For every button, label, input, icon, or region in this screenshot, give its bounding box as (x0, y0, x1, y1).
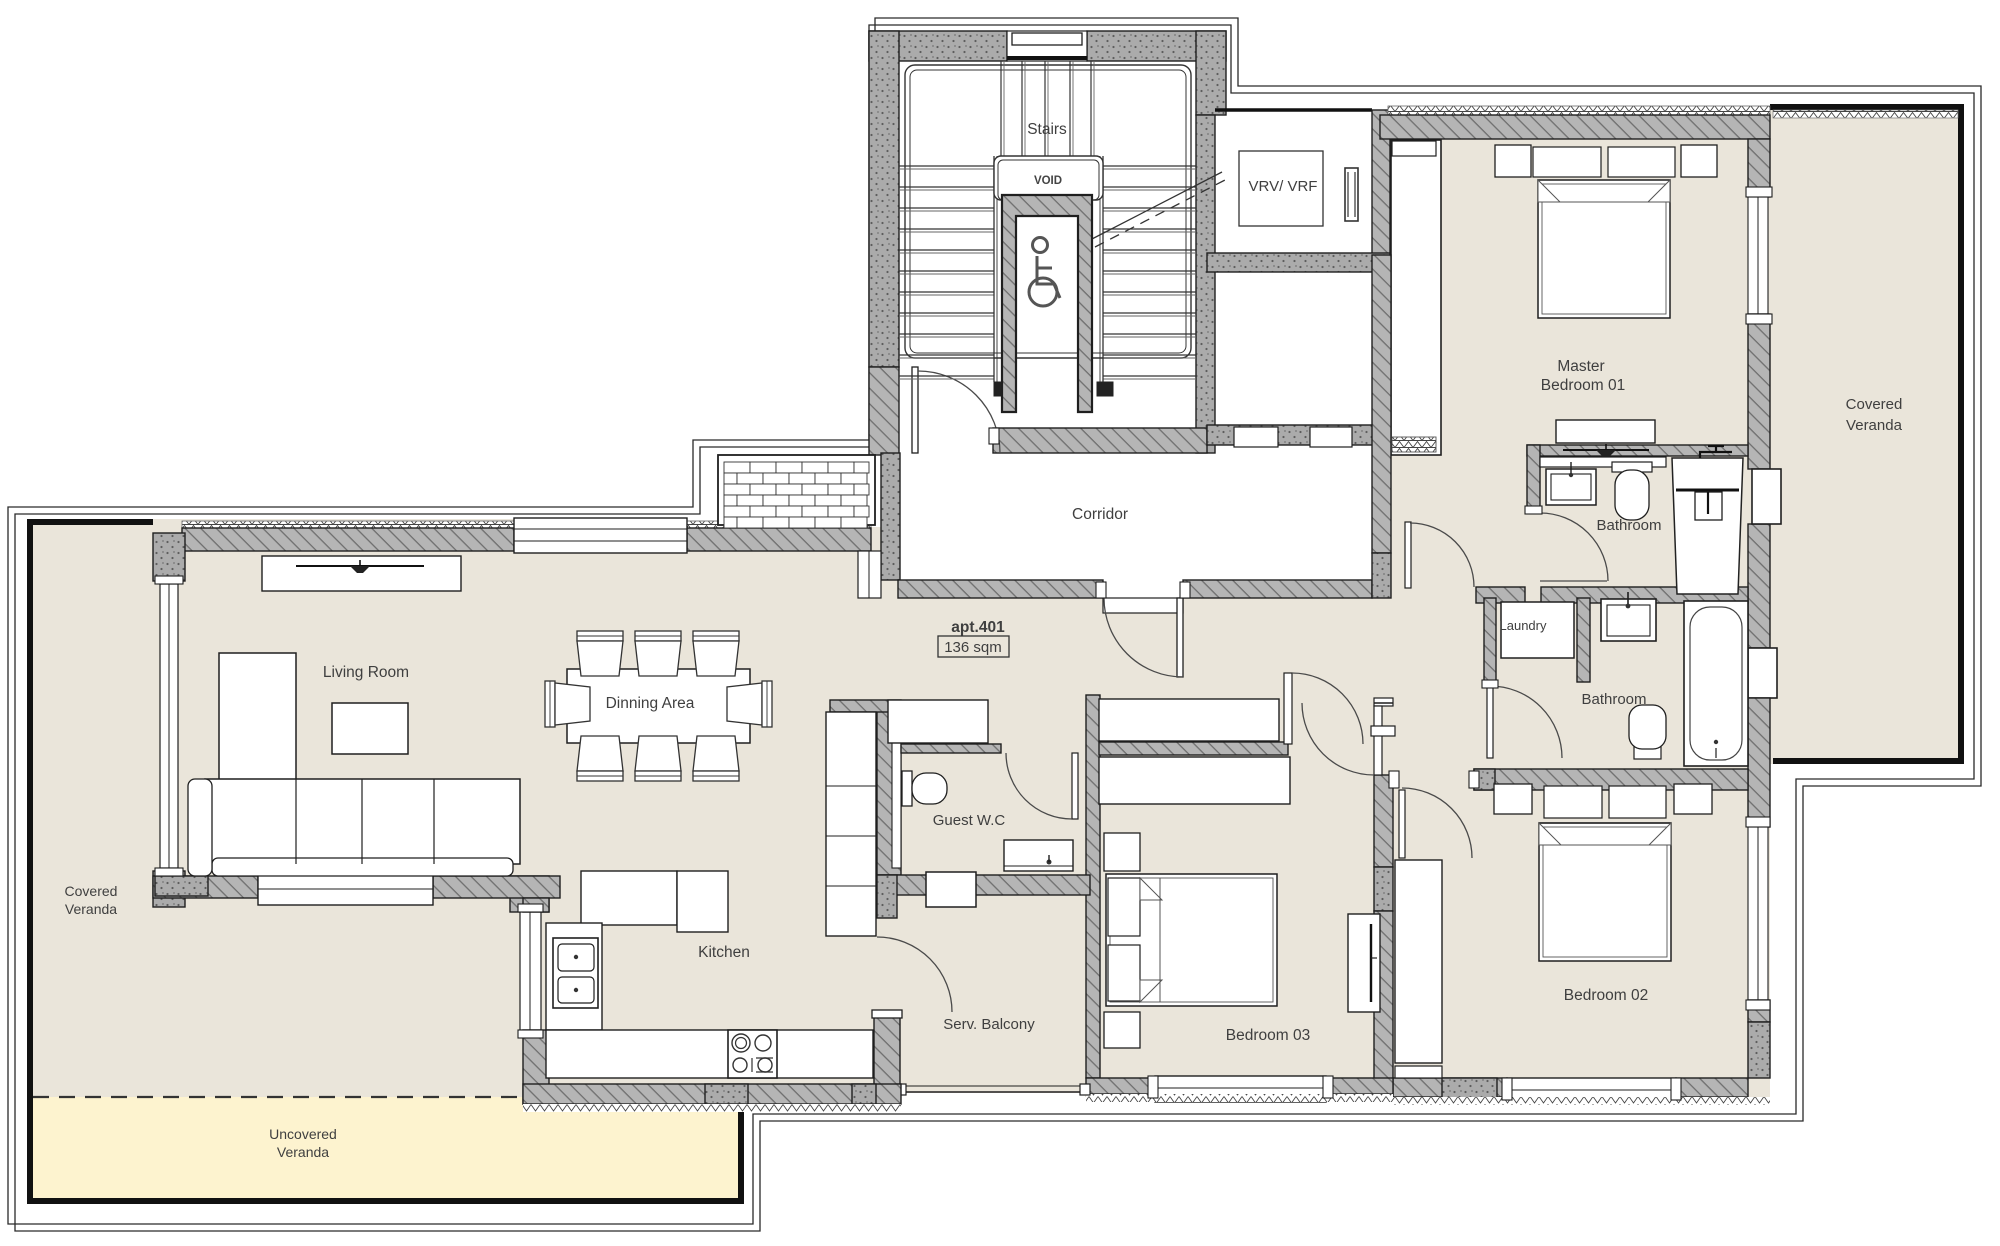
svg-text:Bathroom: Bathroom (1581, 691, 1646, 708)
svg-text:Master: Master (1557, 358, 1604, 375)
svg-text:Veranda: Veranda (277, 1144, 329, 1160)
svg-text:Serv. Balcony: Serv. Balcony (943, 1016, 1035, 1033)
svg-text:Bedroom 01: Bedroom 01 (1541, 377, 1625, 394)
svg-text:136 sqm: 136 sqm (944, 639, 1002, 656)
svg-text:Guest W.C: Guest W.C (933, 812, 1006, 829)
svg-text:Bathroom: Bathroom (1596, 517, 1661, 534)
svg-text:Stairs: Stairs (1027, 121, 1067, 138)
svg-text:apt.401: apt.401 (951, 619, 1005, 636)
svg-text:VOID: VOID (1034, 175, 1062, 187)
svg-text:Veranda: Veranda (1846, 417, 1903, 434)
svg-text:Veranda: Veranda (65, 901, 117, 917)
svg-text:Covered: Covered (1846, 396, 1903, 413)
svg-text:Living Room: Living Room (323, 664, 409, 681)
svg-text:Laundry: Laundry (1500, 618, 1547, 633)
svg-text:Corridor: Corridor (1072, 506, 1128, 523)
svg-text:Uncovered: Uncovered (269, 1126, 337, 1142)
svg-text:Bedroom 02: Bedroom 02 (1564, 987, 1648, 1004)
svg-text:VRV/ VRF: VRV/ VRF (1249, 178, 1318, 195)
svg-text:Bedroom 03: Bedroom 03 (1226, 1027, 1310, 1044)
svg-text:Dinning Area: Dinning Area (606, 695, 695, 712)
svg-text:Kitchen: Kitchen (698, 944, 750, 961)
svg-text:Covered: Covered (65, 883, 118, 899)
